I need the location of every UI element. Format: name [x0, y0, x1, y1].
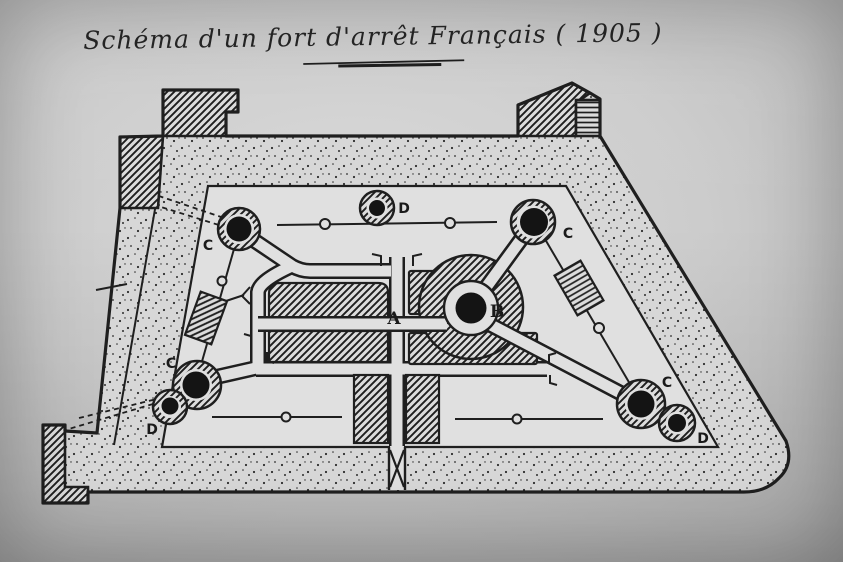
turret-c-upper-left-core — [227, 217, 252, 242]
label-turret-c-upper-right: C — [563, 226, 573, 242]
barracks-block-row1-left — [269, 283, 388, 318]
label-cupola-d-lower-left: D — [146, 422, 158, 438]
label-turret-c-lower-right: C — [662, 375, 672, 391]
label-barracks-a: A — [386, 309, 401, 329]
label-cupola-d-top: D — [398, 201, 410, 217]
entrance-gate — [389, 446, 405, 490]
cupola-d-lower-left-core — [162, 398, 179, 415]
page-title: Schéma d'un fort d'arrêt Français ( 1905… — [83, 18, 663, 55]
cupola-d-top-core — [369, 200, 385, 216]
turret-c-upper-right-core — [520, 208, 548, 236]
bastion-top-right-rect — [576, 100, 600, 136]
label-turret-b: B — [490, 302, 504, 322]
turret-b-core — [456, 293, 487, 324]
label-turret-c-upper-left: C — [203, 238, 213, 254]
barracks-block-row2-left — [269, 331, 388, 362]
turret-c-lower-left-core — [183, 372, 210, 399]
photographed-drawing: C D C A B C D C D Schéma d'un fort d'arr… — [0, 0, 843, 562]
caponier-strip-right — [406, 375, 439, 443]
turret-c-lower-right-core — [628, 391, 655, 418]
fort-plan-svg: C D C A B C D C D Schéma d'un fort d'arr… — [0, 0, 843, 562]
title-underline-heavy — [338, 65, 441, 66]
caponier-strip-left — [354, 375, 388, 443]
label-cupola-d-lower-right: D — [697, 431, 709, 447]
cupola-d-lower-right-core — [668, 414, 686, 432]
bastion-top-left-lower — [120, 136, 163, 208]
label-turret-c-lower-left: C — [166, 356, 176, 372]
drawing-title: Schéma d'un fort d'arrêt Français ( 1905… — [83, 18, 663, 70]
